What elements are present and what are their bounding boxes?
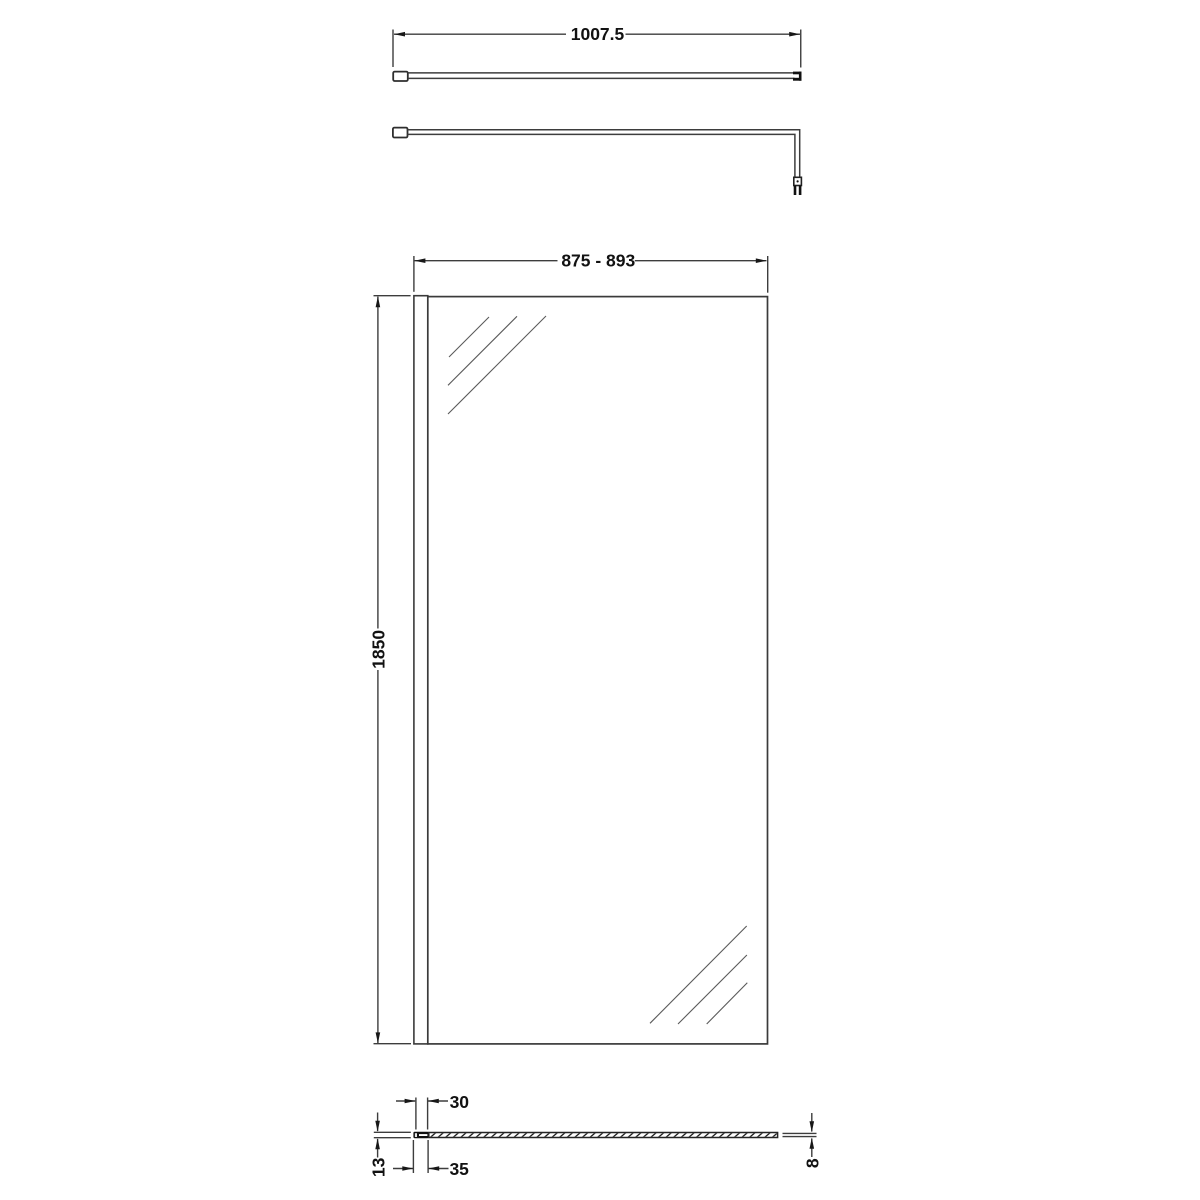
svg-text:875 - 893: 875 - 893 — [561, 251, 635, 271]
svg-text:1850: 1850 — [368, 630, 388, 669]
svg-text:30: 30 — [450, 1092, 470, 1112]
svg-text:1007.5: 1007.5 — [571, 24, 625, 44]
svg-text:35: 35 — [449, 1159, 469, 1179]
svg-text:13: 13 — [368, 1157, 388, 1177]
svg-text:8: 8 — [802, 1158, 822, 1168]
